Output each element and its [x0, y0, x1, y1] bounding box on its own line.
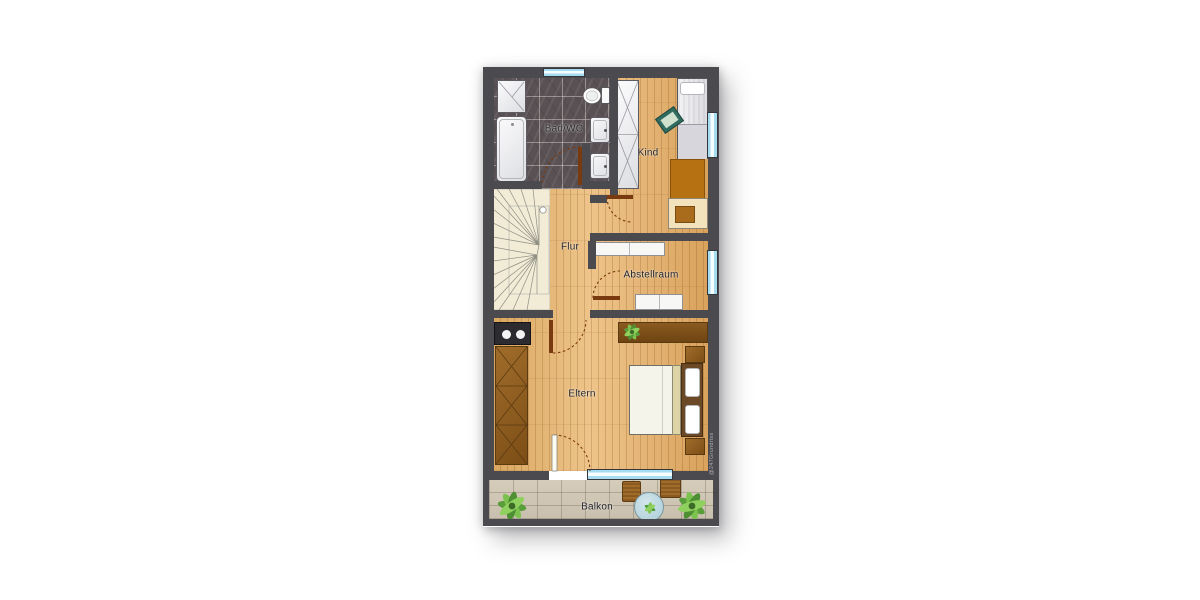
nightstand-icon — [685, 346, 705, 363]
wardrobe-icon — [495, 346, 528, 465]
knob-icon — [516, 330, 525, 339]
shelf-icon — [593, 242, 665, 256]
wall — [483, 67, 494, 480]
duvet-crease — [662, 366, 663, 434]
room-label-balkon: Balkon — [581, 502, 613, 513]
shelf-divider — [629, 243, 630, 255]
window-icon — [543, 68, 585, 77]
sink-faucet — [604, 129, 607, 132]
wall — [590, 233, 708, 241]
nightstand-icon — [685, 438, 705, 455]
wall — [590, 181, 610, 189]
room-label-flur: Flur — [561, 242, 579, 253]
cushion-pad — [660, 112, 678, 129]
wardrobe-x-pattern — [617, 81, 638, 188]
double-bed-icon — [629, 365, 673, 435]
shelf-icon — [635, 294, 683, 310]
wall — [590, 310, 708, 318]
shower-icon — [497, 80, 526, 113]
floorplan-page: Bad/WC Kind Flur Abstellraum Eltern Balk… — [0, 0, 1200, 600]
stair-newel-icon — [540, 207, 546, 213]
pillow-icon — [685, 368, 700, 397]
wall — [483, 471, 549, 480]
wall — [590, 195, 607, 203]
sink-faucet — [604, 165, 607, 168]
toilet-icon — [582, 86, 611, 106]
window-icon — [587, 469, 673, 480]
knob-icon — [502, 330, 511, 339]
blanket — [678, 124, 707, 159]
chair-icon — [675, 206, 695, 223]
wall — [588, 241, 596, 269]
sink-icon — [590, 153, 610, 179]
staircase-icon — [493, 189, 550, 310]
shower-glass-lines — [498, 81, 525, 112]
balcony-table-icon — [634, 492, 664, 522]
dresser-icon — [494, 322, 531, 345]
bed-headboard — [681, 363, 703, 437]
wall — [610, 78, 618, 195]
bathtub-icon — [496, 116, 527, 182]
room-label-eltern: Eltern — [568, 389, 595, 400]
pillow-icon — [680, 82, 705, 95]
wall — [582, 143, 590, 189]
balcony-wall — [483, 519, 719, 526]
bathtub-drain — [511, 123, 514, 126]
wall — [483, 67, 719, 78]
room-label-kind: Kind — [638, 148, 659, 159]
balcony-wall — [483, 480, 489, 521]
window-icon — [707, 112, 718, 158]
wall — [494, 181, 542, 189]
plant-icon — [621, 321, 643, 343]
bathtub-rim — [499, 119, 524, 179]
shelf-divider — [659, 295, 660, 309]
floorplan: Bad/WC Kind Flur Abstellraum Eltern Balk… — [483, 67, 719, 527]
balcony-wall — [713, 480, 719, 521]
pillow-icon — [685, 405, 700, 434]
sink-icon — [590, 117, 610, 143]
plant-icon — [493, 489, 531, 523]
wall — [494, 310, 553, 318]
rug-icon — [670, 159, 705, 200]
wardrobe-x-pattern — [496, 347, 527, 464]
room-label-bad: Bad/WC — [545, 124, 583, 135]
watermark-text: @247Grundriss — [709, 423, 719, 475]
window-icon — [707, 250, 718, 295]
bed-footboard — [672, 365, 681, 435]
room-label-abstellraum: Abstellraum — [624, 270, 679, 281]
wardrobe-icon — [616, 80, 639, 189]
